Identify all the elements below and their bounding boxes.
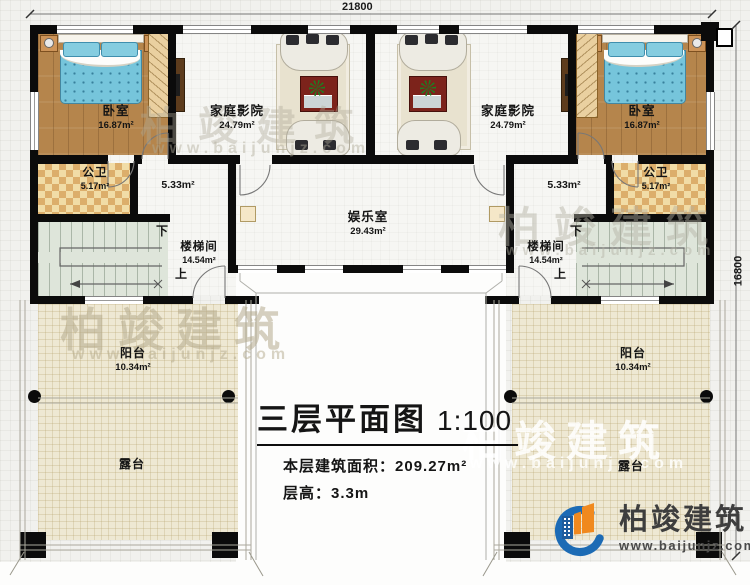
room-label-terrace-right: 露台 bbox=[618, 457, 644, 474]
plant bbox=[309, 80, 325, 96]
floor-plan-page: 21800 16800 卧室 16.87m² 家庭影院 24.79m² 家庭影院… bbox=[0, 0, 750, 585]
wall bbox=[659, 296, 714, 304]
window bbox=[183, 25, 251, 34]
pillow bbox=[63, 42, 100, 57]
room-label-balcony-left: 阳台 10.34m² bbox=[115, 344, 150, 373]
stair-down-label-left: 下 bbox=[156, 222, 168, 239]
wall bbox=[506, 265, 514, 273]
window bbox=[469, 265, 506, 273]
window bbox=[85, 296, 143, 304]
window bbox=[305, 265, 343, 273]
pillow bbox=[646, 42, 683, 57]
wall bbox=[228, 155, 236, 273]
window bbox=[397, 25, 439, 34]
wall bbox=[277, 265, 305, 273]
window bbox=[30, 92, 39, 150]
wall bbox=[568, 25, 576, 158]
room-label-theater-left: 家庭影院 24.79m² bbox=[210, 100, 264, 131]
room-label-bedroom-right: 卧室 16.87m² bbox=[624, 100, 659, 131]
sofa bbox=[399, 31, 467, 71]
room-label-stair-left: 楼梯间 14.54m² bbox=[180, 238, 218, 265]
company-website: www.baijunjz.com bbox=[619, 538, 750, 553]
room-label-theater-right: 家庭影院 24.79m² bbox=[481, 100, 535, 131]
wall bbox=[574, 214, 714, 222]
stairs-right-landing bbox=[576, 252, 706, 263]
side-table bbox=[240, 206, 256, 222]
window bbox=[578, 25, 654, 34]
wall bbox=[130, 163, 138, 214]
company-name: 柏竣建筑 bbox=[619, 506, 750, 535]
stair-up-label-right: 上 bbox=[554, 265, 566, 282]
wall bbox=[225, 296, 259, 304]
room-label-stair-right: 楼梯间 14.54m² bbox=[527, 238, 565, 265]
room-label-game-room: 娱乐室 29.43m² bbox=[348, 206, 389, 237]
company-logo-icon bbox=[548, 501, 612, 557]
plan-title-row: 三层平面图 1:100 bbox=[257, 394, 518, 446]
wall bbox=[706, 25, 714, 304]
plan-scale: 1:100 bbox=[437, 405, 512, 437]
dimension-width: 21800 bbox=[338, 1, 377, 13]
room-label-balcony-right: 阳台 10.34m² bbox=[615, 344, 650, 373]
terrace-corner-post bbox=[212, 532, 238, 558]
wall bbox=[506, 155, 514, 273]
terrace-corner-post bbox=[20, 532, 46, 558]
window bbox=[308, 25, 350, 34]
wall bbox=[343, 265, 403, 273]
plant bbox=[420, 80, 436, 96]
wall bbox=[143, 296, 193, 304]
wall bbox=[506, 155, 578, 164]
coffee-table-glass bbox=[413, 95, 441, 108]
wall bbox=[30, 296, 85, 304]
sofa bbox=[397, 120, 461, 156]
stair-up-label-left: 上 bbox=[175, 265, 187, 282]
wall bbox=[551, 296, 601, 304]
window bbox=[403, 265, 441, 273]
wall bbox=[228, 265, 238, 273]
floor-height-line: 层高：3.3m bbox=[257, 482, 518, 503]
balcony-post bbox=[28, 390, 41, 403]
stair-down-label-right: 下 bbox=[570, 222, 582, 239]
company-logo: 柏竣建筑 www.baijunjz.com bbox=[548, 501, 750, 557]
room-label-terrace-left: 露台 bbox=[119, 455, 145, 472]
window bbox=[238, 265, 277, 273]
terrace-corner-post bbox=[504, 532, 530, 558]
wall bbox=[30, 25, 38, 304]
plan-title: 三层平面图 bbox=[257, 394, 427, 439]
company-logo-text: 柏竣建筑 www.baijunjz.com bbox=[619, 506, 750, 553]
room-label-bedroom-left: 卧室 16.87m² bbox=[98, 100, 133, 131]
room-label-hall-left: 5.33m² bbox=[161, 178, 194, 191]
wall bbox=[485, 296, 519, 304]
side-table bbox=[489, 206, 505, 222]
stairs-left-landing bbox=[38, 252, 168, 263]
floor-area-line: 本层建筑面积：209.27m² bbox=[257, 455, 518, 476]
wall bbox=[606, 163, 614, 214]
nightstand bbox=[40, 35, 58, 52]
room-label-bath-left: 公卫 5.17m² bbox=[81, 164, 110, 191]
window bbox=[57, 25, 133, 34]
room-label-hall-right: 5.33m² bbox=[547, 178, 580, 191]
window bbox=[706, 92, 715, 150]
wall bbox=[168, 25, 176, 158]
balcony-post bbox=[222, 390, 235, 403]
sofa bbox=[286, 120, 350, 156]
window bbox=[601, 296, 659, 304]
title-block: 三层平面图 1:100 本层建筑面积：209.27m² 层高：3.3m bbox=[257, 394, 518, 503]
wall bbox=[366, 25, 375, 164]
balcony-post bbox=[700, 390, 713, 403]
wall bbox=[638, 155, 714, 164]
chimney-flue bbox=[716, 28, 733, 47]
bottom-margin bbox=[0, 562, 750, 585]
room-label-bath-right: 公卫 5.17m² bbox=[642, 164, 671, 191]
window bbox=[459, 25, 527, 34]
coffee-table-glass bbox=[304, 95, 332, 108]
wall bbox=[30, 214, 170, 222]
wardrobe bbox=[576, 28, 598, 118]
pillow bbox=[101, 42, 138, 57]
terrace-left-floor bbox=[38, 304, 238, 540]
wall bbox=[441, 265, 469, 273]
sofa bbox=[280, 31, 348, 71]
wall bbox=[30, 155, 108, 164]
wardrobe bbox=[148, 28, 170, 118]
pillow bbox=[608, 42, 645, 57]
wall bbox=[272, 155, 474, 164]
dimension-height: 16800 bbox=[732, 256, 744, 287]
